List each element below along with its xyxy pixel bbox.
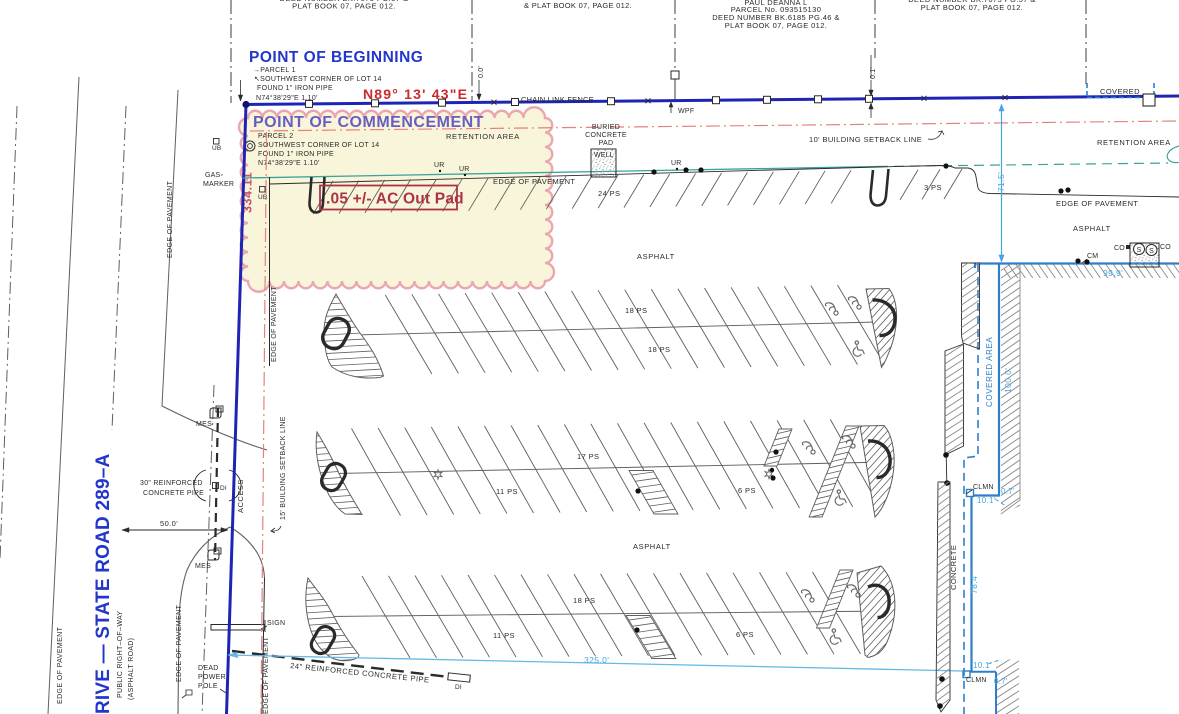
svg-text:CO: CO xyxy=(1160,244,1171,251)
svg-text:WPF: WPF xyxy=(678,108,694,115)
svg-text:10.1': 10.1' xyxy=(973,661,992,670)
svg-text:WELL: WELL xyxy=(594,152,614,159)
svg-text:EDGE OF PAVEMENT: EDGE OF PAVEMENT xyxy=(57,626,64,704)
svg-text:ASPHALT: ASPHALT xyxy=(633,542,671,551)
svg-text:18 PS: 18 PS xyxy=(648,345,670,354)
svg-text:UB: UB xyxy=(258,194,267,201)
svg-text:15' BUILDING SETBACK LINE: 15' BUILDING SETBACK LINE xyxy=(280,416,287,520)
svg-text:UB: UB xyxy=(212,145,221,152)
svg-text:10' BUILDING SETBACK LINE: 10' BUILDING SETBACK LINE xyxy=(809,135,922,144)
svg-text:CONCRETE: CONCRETE xyxy=(949,545,958,590)
svg-text:UR: UR xyxy=(459,166,470,173)
svg-text:(ASPHALT ROAD): (ASPHALT ROAD) xyxy=(128,638,135,700)
svg-text:PLAT BOOK 07, PAGE 012.: PLAT BOOK 07, PAGE 012. xyxy=(921,3,1024,12)
svg-text:78.4': 78.4' xyxy=(969,574,979,594)
svg-text:0.7': 0.7' xyxy=(1001,487,1015,496)
svg-text:DI: DI xyxy=(455,684,462,691)
svg-text:COVERED: COVERED xyxy=(1100,87,1140,96)
svg-text:PLAT BOOK 07, PAGE 012.: PLAT BOOK 07, PAGE 012. xyxy=(292,2,396,11)
svg-text:EDGE OF PAVEMENT: EDGE OF PAVEMENT xyxy=(1056,199,1138,208)
svg-text:CO: CO xyxy=(1114,245,1125,252)
svg-text:CLMN: CLMN xyxy=(973,484,994,491)
svg-text:N74°38'29"E 1.10': N74°38'29"E 1.10' xyxy=(258,159,320,167)
svg-text:GAS▫: GAS▫ xyxy=(205,172,223,179)
svg-text:3 PS: 3 PS xyxy=(924,183,942,192)
svg-text:0.7': 0.7' xyxy=(994,677,1008,686)
svg-text:RETENTION AREA: RETENTION AREA xyxy=(446,132,520,141)
svg-text:EDGE OF PAVEMENT: EDGE OF PAVEMENT xyxy=(176,604,183,682)
svg-text:99.9': 99.9' xyxy=(1103,268,1123,278)
svg-text:POLE: POLE xyxy=(198,683,218,690)
svg-text:CLMN: CLMN xyxy=(966,677,987,684)
svg-text:50.0': 50.0' xyxy=(160,519,178,528)
svg-text:COVERED AREA: COVERED AREA xyxy=(985,337,994,407)
svg-text:PAD: PAD xyxy=(599,140,614,147)
svg-text:71.5': 71.5' xyxy=(996,172,1006,192)
svg-text:6 PS: 6 PS xyxy=(736,630,754,639)
svg-text:18 PS: 18 PS xyxy=(573,596,595,605)
svg-text:DEAD: DEAD xyxy=(198,665,219,672)
svg-text:S: S xyxy=(1137,247,1142,254)
svg-text:DI: DI xyxy=(220,485,227,492)
svg-text:325.0': 325.0' xyxy=(584,655,609,665)
svg-text:POWER: POWER xyxy=(198,674,226,681)
svg-text:↖SOUTHWEST CORNER OF LOT 14: ↖SOUTHWEST CORNER OF LOT 14 xyxy=(254,76,382,83)
svg-text:EDGE OF PAVEMENT: EDGE OF PAVEMENT xyxy=(167,180,174,258)
svg-text:FOUND 1" IRON PIPE: FOUND 1" IRON PIPE xyxy=(258,151,334,158)
svg-text:PUBLIC RIGHT–OF–WAY: PUBLIC RIGHT–OF–WAY xyxy=(117,611,124,698)
svg-text:POINT OF BEGINNING: POINT OF BEGINNING xyxy=(249,49,423,66)
svg-text:PLAT BOOK 07, PAGE 012.: PLAT BOOK 07, PAGE 012. xyxy=(725,21,828,30)
svg-text:FOUND 1" IRON PIPE: FOUND 1" IRON PIPE xyxy=(257,85,333,92)
svg-text:MARKER: MARKER xyxy=(203,181,234,188)
svg-text:CHAIN LINK FENCE: CHAIN LINK FENCE xyxy=(521,95,594,104)
svg-text:CM: CM xyxy=(1087,253,1098,260)
svg-text:ASPHALT: ASPHALT xyxy=(637,252,675,261)
svg-text:10.1': 10.1' xyxy=(977,496,996,505)
svg-text:UR: UR xyxy=(671,160,682,167)
svg-text:EDGE OF PAVEMENT: EDGE OF PAVEMENT xyxy=(271,286,278,362)
svg-text:S: S xyxy=(1149,248,1154,255)
svg-text:0.0': 0.0' xyxy=(478,66,485,78)
svg-text:EDGE OF PAVEMENT: EDGE OF PAVEMENT xyxy=(263,636,270,714)
svg-text:RIVE — STATE ROAD 289–A: RIVE — STATE ROAD 289–A xyxy=(93,453,114,714)
svg-text:SOUTHWEST CORNER OF LOT 14: SOUTHWEST CORNER OF LOT 14 xyxy=(258,142,380,149)
svg-text:UR: UR xyxy=(434,162,445,169)
svg-text:17 PS: 17 PS xyxy=(577,452,599,461)
svg-text:BURIED: BURIED xyxy=(592,124,620,131)
svg-text:24 PS: 24 PS xyxy=(598,189,620,198)
svg-text:11 PS: 11 PS xyxy=(493,631,515,640)
svg-text:SIGN: SIGN xyxy=(267,620,285,627)
svg-text:MES: MES xyxy=(196,421,212,428)
svg-text:& PLAT BOOK 07, PAGE 012.: & PLAT BOOK 07, PAGE 012. xyxy=(524,1,632,10)
svg-text:11 PS: 11 PS xyxy=(496,487,518,496)
svg-text:ASPHALT: ASPHALT xyxy=(1073,224,1111,233)
svg-text:CONCRETE: CONCRETE xyxy=(585,132,627,139)
svg-text:18 PS: 18 PS xyxy=(625,306,647,315)
svg-text:PARCEL 2: PARCEL 2 xyxy=(258,133,293,140)
svg-text:30" REINFORCED: 30" REINFORCED xyxy=(140,480,203,487)
svg-text:MES: MES xyxy=(195,563,211,570)
svg-text:RETENTION AREA: RETENTION AREA xyxy=(1097,138,1171,147)
svg-text:.05 +/- AC Out Pad: .05 +/- AC Out Pad xyxy=(326,191,464,208)
svg-text:6 PS: 6 PS xyxy=(738,486,756,495)
svg-text:→PARCEL 1: →PARCEL 1 xyxy=(253,67,296,74)
